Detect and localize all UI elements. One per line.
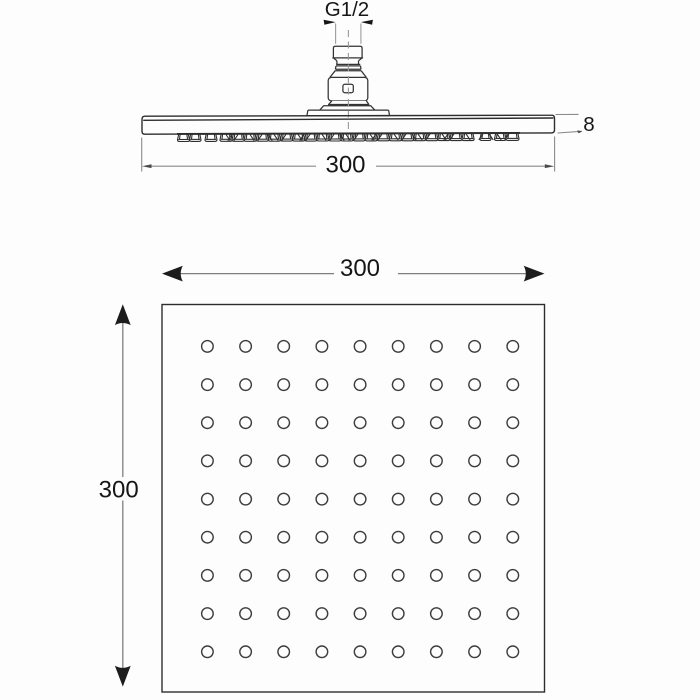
svg-text:300: 300 bbox=[340, 255, 380, 282]
svg-text:8: 8 bbox=[583, 113, 594, 136]
svg-text:300: 300 bbox=[99, 477, 139, 504]
svg-text:G1/2: G1/2 bbox=[325, 0, 369, 21]
svg-text:300: 300 bbox=[325, 151, 365, 178]
